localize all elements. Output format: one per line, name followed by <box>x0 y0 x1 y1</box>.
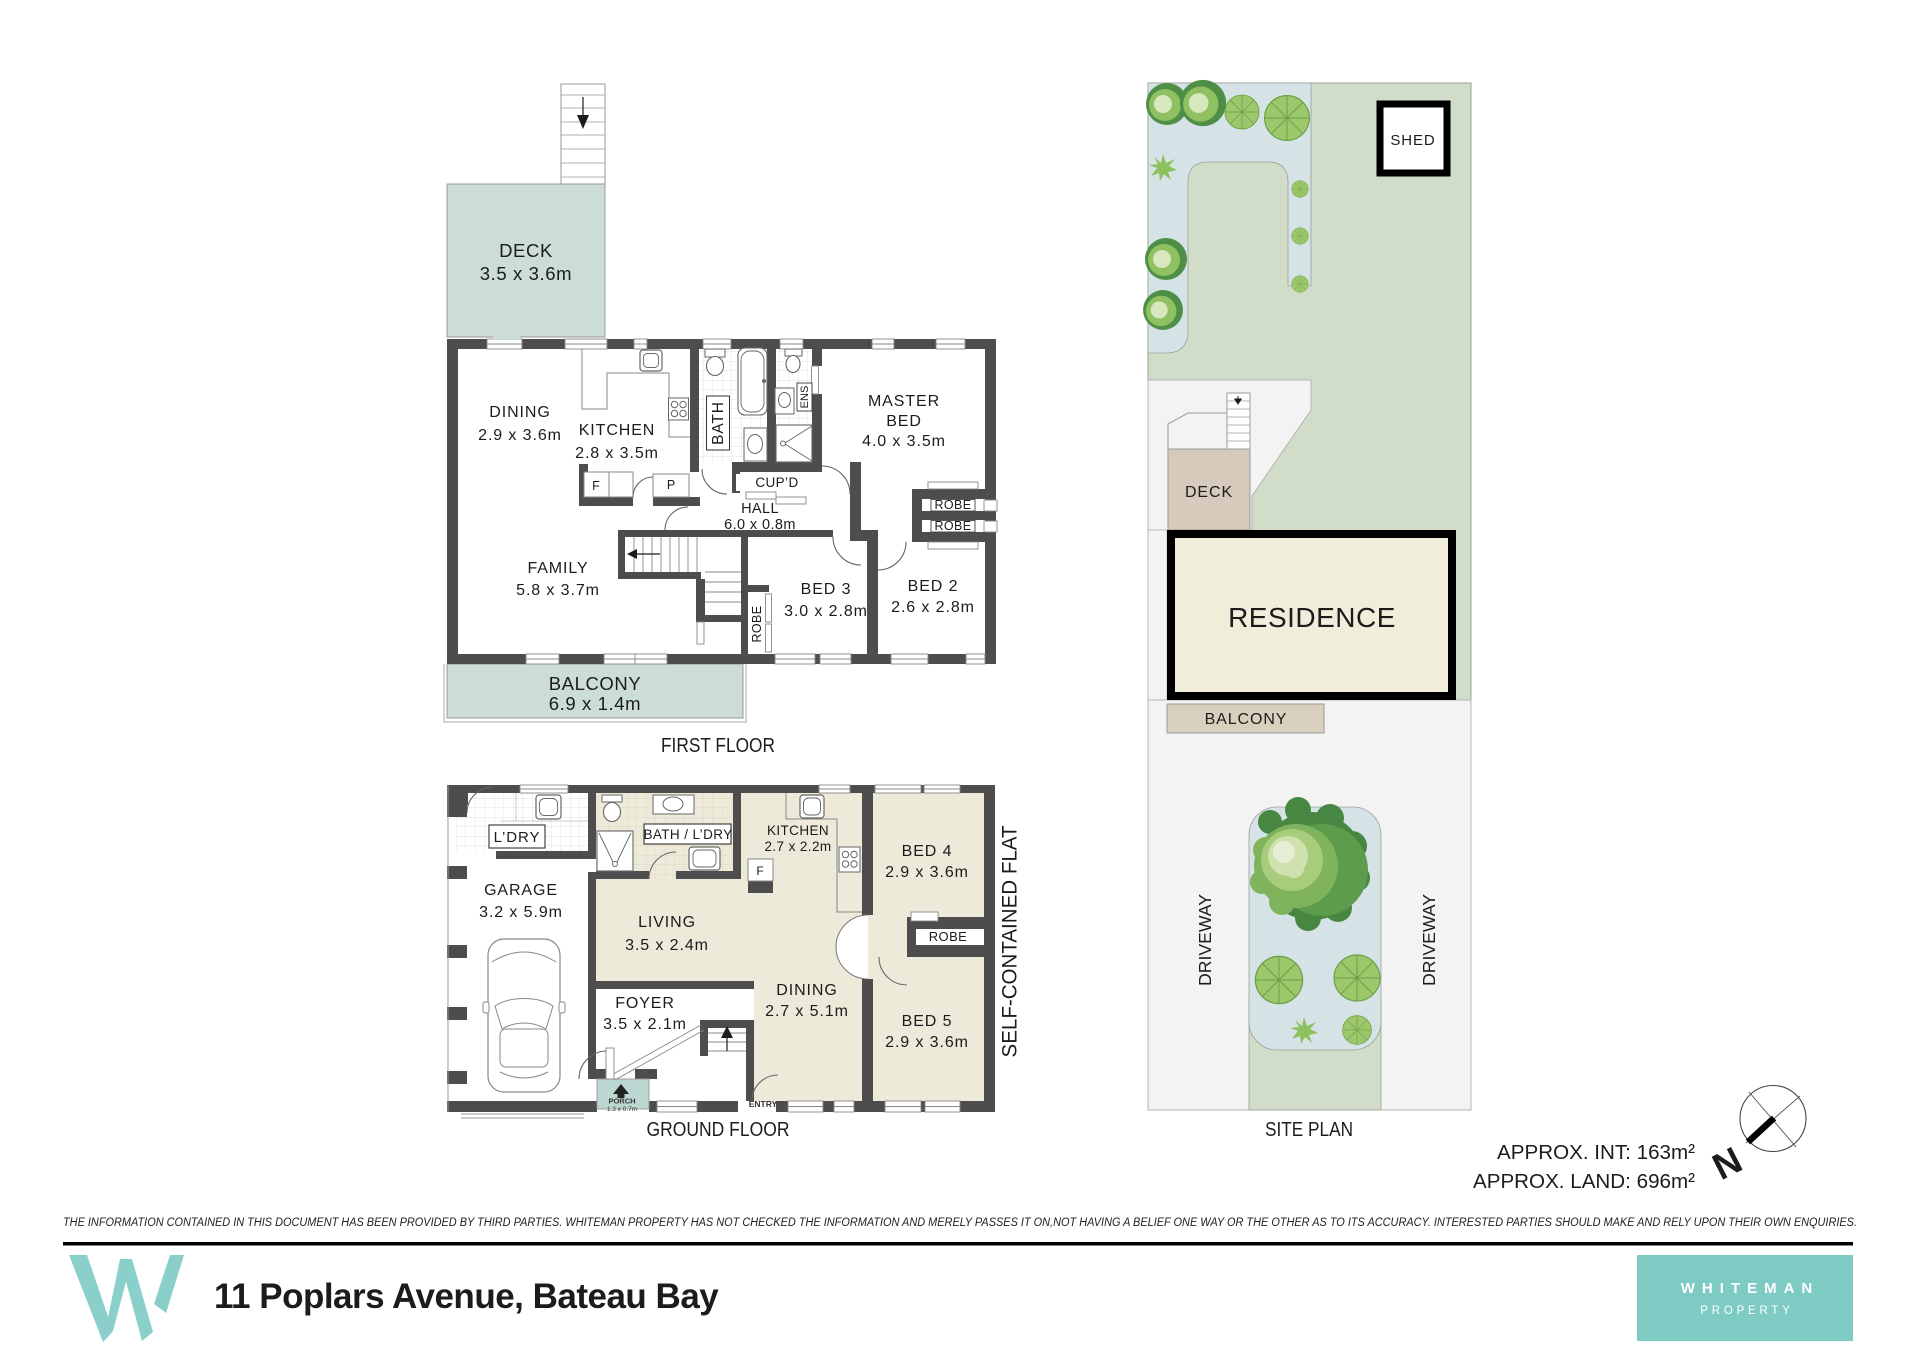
svg-text:P: P <box>667 478 675 492</box>
svg-text:3.5 x 2.4m: 3.5 x 2.4m <box>625 937 709 954</box>
svg-text:ROBE: ROBE <box>929 929 967 944</box>
svg-text:SITE PLAN: SITE PLAN <box>1265 1118 1353 1141</box>
svg-text:L’DRY: L’DRY <box>494 829 541 846</box>
svg-text:6.0 x 0.8m: 6.0 x 0.8m <box>724 517 796 533</box>
svg-text:DECK: DECK <box>1185 484 1233 501</box>
svg-text:2.9 x 3.6m: 2.9 x 3.6m <box>885 1034 969 1051</box>
svg-text:F: F <box>592 479 600 493</box>
svg-text:KITCHEN: KITCHEN <box>767 823 829 838</box>
svg-text:BED 5: BED 5 <box>902 1013 953 1030</box>
svg-text:ROBE: ROBE <box>934 498 971 512</box>
svg-text:2.9 x 3.6m: 2.9 x 3.6m <box>885 864 969 881</box>
svg-text:1.3 x 0.7m: 1.3 x 0.7m <box>607 1106 637 1113</box>
svg-text:2.8 x 3.5m: 2.8 x 3.5m <box>575 445 659 462</box>
svg-text:2.7 x 2.2m: 2.7 x 2.2m <box>764 839 831 854</box>
svg-text:BALCONY: BALCONY <box>549 673 642 694</box>
svg-text:DINING: DINING <box>776 982 837 999</box>
svg-text:ENTRY: ENTRY <box>749 1099 778 1109</box>
svg-text:CUP’D: CUP’D <box>755 475 798 490</box>
svg-text:BATH / L’DRY: BATH / L’DRY <box>643 827 732 842</box>
svg-text:SHED: SHED <box>1390 132 1435 149</box>
svg-text:KITCHEN: KITCHEN <box>579 422 656 439</box>
svg-text:APPROX. LAND: 696m²: APPROX. LAND: 696m² <box>1473 1170 1695 1193</box>
svg-text:DINING: DINING <box>489 404 550 421</box>
svg-text:PROPERTY: PROPERTY <box>1700 1305 1793 1317</box>
svg-text:BALCONY: BALCONY <box>1205 711 1288 728</box>
svg-text:DECK: DECK <box>499 240 553 261</box>
svg-text:WHITEMAN: WHITEMAN <box>1681 1280 1820 1297</box>
svg-text:SELF-CONTAINED FLAT: SELF-CONTAINED FLAT <box>999 825 1022 1057</box>
svg-text:3.5 x 2.1m: 3.5 x 2.1m <box>603 1016 687 1033</box>
svg-text:F: F <box>756 864 763 878</box>
svg-text:RESIDENCE: RESIDENCE <box>1228 602 1396 633</box>
svg-text:LIVING: LIVING <box>638 914 696 931</box>
svg-text:5.8 x 3.7m: 5.8 x 3.7m <box>516 582 600 599</box>
svg-text:BED 3: BED 3 <box>801 581 852 598</box>
svg-text:3.0 x 2.8m: 3.0 x 2.8m <box>784 603 868 620</box>
svg-text:ROBE: ROBE <box>750 605 764 642</box>
svg-text:GARAGE: GARAGE <box>484 882 558 899</box>
svg-text:2.7 x 5.1m: 2.7 x 5.1m <box>765 1003 849 1020</box>
svg-text:GROUND FLOOR: GROUND FLOOR <box>647 1118 790 1141</box>
svg-text:DRIVEWAY: DRIVEWAY <box>1195 894 1215 986</box>
svg-text:3.5 x 3.6m: 3.5 x 3.6m <box>480 263 572 284</box>
svg-text:3.2 x 5.9m: 3.2 x 5.9m <box>479 904 563 921</box>
svg-text:THE INFORMATION CONTAINED IN T: THE INFORMATION CONTAINED IN THIS DOCUME… <box>63 1217 1857 1229</box>
svg-text:BATH: BATH <box>710 401 727 445</box>
svg-text:DRIVEWAY: DRIVEWAY <box>1419 894 1439 986</box>
svg-text:2.6 x 2.8m: 2.6 x 2.8m <box>891 599 975 616</box>
svg-text:BED 2: BED 2 <box>908 578 959 595</box>
svg-text:FIRST FLOOR: FIRST FLOOR <box>661 734 775 757</box>
svg-text:MASTER: MASTER <box>868 393 940 410</box>
svg-text:FAMILY: FAMILY <box>527 560 588 577</box>
svg-text:6.9 x 1.4m: 6.9 x 1.4m <box>549 693 641 714</box>
svg-text:APPROX. INT: 163m²: APPROX. INT: 163m² <box>1497 1141 1695 1164</box>
svg-text:HALL: HALL <box>741 501 779 517</box>
svg-text:ROBE: ROBE <box>934 519 971 533</box>
svg-text:4.0 x 3.5m: 4.0 x 3.5m <box>862 433 946 450</box>
svg-text:FOYER: FOYER <box>615 995 675 1012</box>
svg-text:PORCH: PORCH <box>608 1097 635 1106</box>
svg-text:BED: BED <box>886 413 922 430</box>
svg-text:ENS: ENS <box>799 386 811 409</box>
svg-text:BED 4: BED 4 <box>902 843 953 860</box>
svg-text:11 Poplars Avenue, Bateau Bay: 11 Poplars Avenue, Bateau Bay <box>214 1277 719 1316</box>
svg-text:2.9 x 3.6m: 2.9 x 3.6m <box>478 427 562 444</box>
